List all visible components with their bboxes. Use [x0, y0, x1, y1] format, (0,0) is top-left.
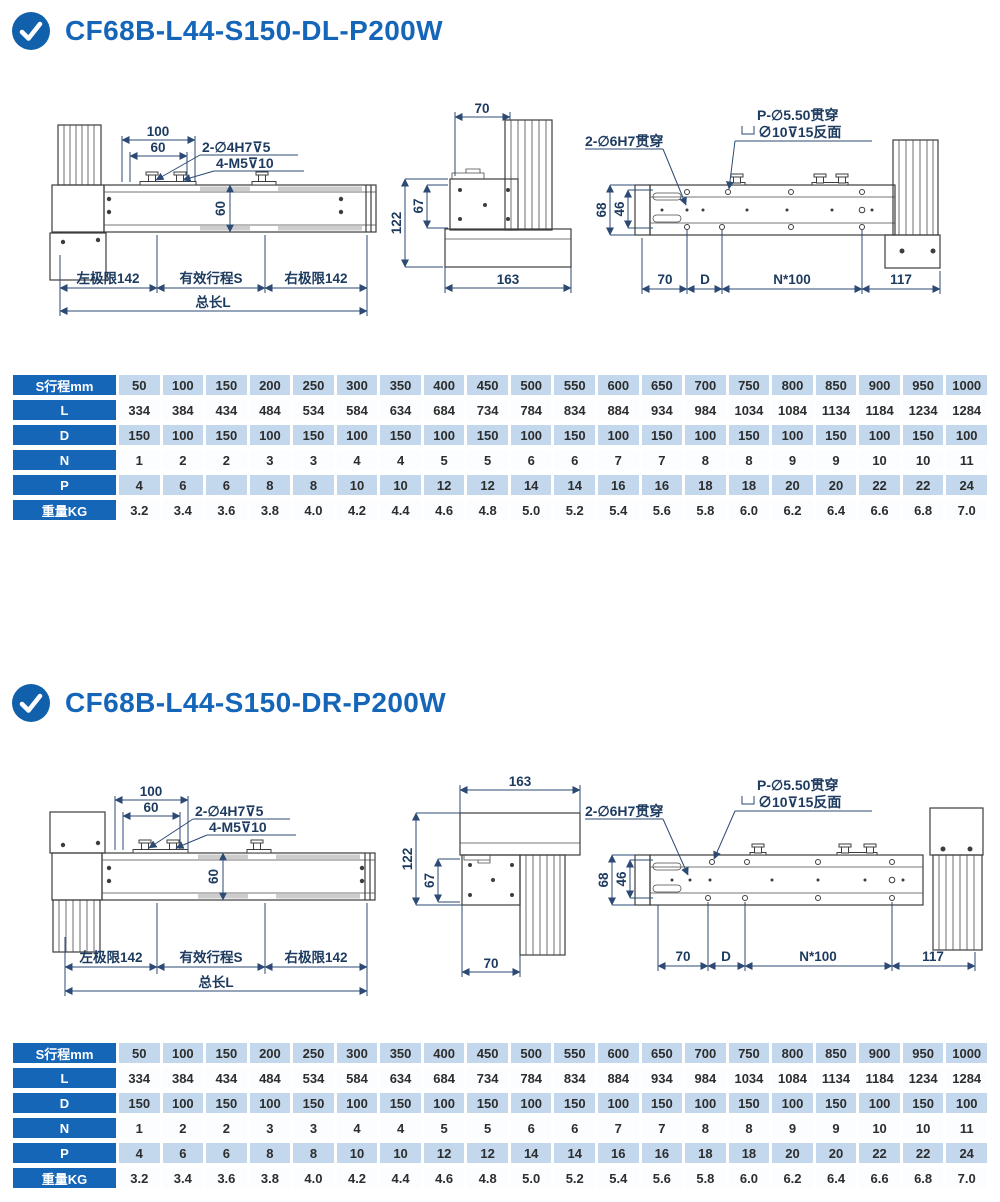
spec-cell: 150	[467, 1093, 508, 1113]
spec-cell: 1234	[903, 400, 944, 420]
checkmark-icon	[12, 684, 50, 722]
dimensions: 68 46 70 D N*100 117	[596, 855, 975, 971]
spec-cell: 10	[337, 1143, 378, 1163]
spec-cell: 950	[903, 375, 944, 395]
dimensions: 68 46 70 D N*100 117	[594, 185, 940, 294]
spec-cell: 100	[772, 425, 813, 445]
spec-cell: 950	[903, 1043, 944, 1063]
spec-row: D150100150100150100150100150100150100150…	[13, 1093, 987, 1113]
spec-row: P46688101012121414161618182020222224	[13, 475, 987, 495]
spec-cell: 14	[511, 475, 552, 495]
spec-cell: 450	[467, 1043, 508, 1063]
spec-cell: 484	[250, 1068, 291, 1088]
spec-cell: 6	[511, 450, 552, 470]
motor-assembly	[50, 125, 106, 280]
dim-67: 67	[411, 198, 426, 213]
annotation-dowel-holes: 2-∅4H7⊽5	[202, 139, 271, 155]
spec-cell: 20	[772, 1143, 813, 1163]
spec-cell: 750	[729, 375, 770, 395]
spec-cell: 150	[642, 425, 683, 445]
spec-cell: 5.6	[642, 500, 683, 520]
spec-cell: 434	[206, 400, 247, 420]
row-label: L	[13, 1068, 116, 1088]
carriage	[140, 172, 276, 185]
spec-cell: 6.4	[816, 500, 857, 520]
spec-cell: 150	[467, 425, 508, 445]
spec-cell: 1	[119, 1118, 160, 1138]
product-title: CF68B-L44-S150-DR-P200W	[65, 687, 446, 719]
dim-70: 70	[657, 272, 672, 287]
spec-cell: 10	[380, 1143, 421, 1163]
spec-cell: 7	[598, 1118, 639, 1138]
spec-cell: 8	[293, 475, 334, 495]
row-label: N	[13, 1118, 116, 1138]
spec-cell: 634	[380, 400, 421, 420]
spec-cell: 434	[206, 1068, 247, 1088]
drawing-side-view-dl: 100 60 2-∅4H7⊽5 4-M5⊽10 60 左极限142 有效行程S …	[40, 95, 385, 335]
spec-cell: 5.2	[554, 1168, 595, 1188]
spec-cell: 1284	[946, 1068, 987, 1088]
spec-cell: 650	[642, 375, 683, 395]
spec-cell: 150	[293, 1093, 334, 1113]
spec-cell: 784	[511, 1068, 552, 1088]
spec-cell: 600	[598, 1043, 639, 1063]
spec-cell: 150	[380, 425, 421, 445]
rail-body	[635, 185, 895, 235]
spec-cell: 100	[337, 425, 378, 445]
spec-cell: 6.0	[729, 1168, 770, 1188]
annotation-mount-screws: 4-M5⊽10	[209, 819, 267, 835]
spec-cell: 100	[685, 1093, 726, 1113]
spec-cell: 4	[337, 450, 378, 470]
spec-cell: 100	[511, 1093, 552, 1113]
dim-60-top: 60	[143, 800, 158, 815]
annotation-side-holes: 2-∅6H7贯穿	[585, 133, 663, 149]
spec-cell: 14	[554, 1143, 595, 1163]
spec-cell: 16	[598, 1143, 639, 1163]
drawing-side-view-dr: 100 60 2-∅4H7⊽5 4-M5⊽10 60 左极限142 有效行程S …	[30, 775, 390, 1020]
spec-cell: 650	[642, 1043, 683, 1063]
spec-cell: 6	[163, 1143, 204, 1163]
spec-cell: 150	[206, 375, 247, 395]
spec-row: 重量KG3.23.43.63.84.04.24.44.64.85.05.25.4…	[13, 1168, 987, 1188]
spec-cell: 100	[163, 1093, 204, 1113]
spec-cell: 7	[642, 450, 683, 470]
spec-cell: 8	[685, 1118, 726, 1138]
spec-cell: 150	[903, 425, 944, 445]
spec-cell: 5.4	[598, 500, 639, 520]
annotations: 2-∅6H7贯穿 P-∅5.50贯穿 ∅10⊽15反面	[585, 777, 872, 875]
spec-cell: 1084	[772, 400, 813, 420]
spec-row: L334384434484534584634684734784834884934…	[13, 400, 987, 420]
spec-cell: 884	[598, 400, 639, 420]
carriage	[462, 855, 520, 905]
annotation-p-holes: P-∅5.50贯穿	[757, 777, 838, 793]
dim-total-length: 总长L	[195, 294, 230, 310]
spec-cell: 6.8	[903, 500, 944, 520]
spec-row: N12233445566778899101011	[13, 450, 987, 470]
spec-cell: 4.2	[337, 1168, 378, 1188]
checkmark-icon	[12, 12, 50, 50]
dim-left-limit: 左极限142	[78, 949, 142, 965]
row-label: 重量KG	[13, 1168, 116, 1188]
spec-cell: 5.8	[685, 500, 726, 520]
carriage	[450, 169, 518, 230]
spec-cell: 150	[293, 425, 334, 445]
spec-cell: 20	[772, 475, 813, 495]
row-label: D	[13, 425, 116, 445]
spec-table-2: S行程mm50100150200250300350400450500550600…	[10, 1038, 990, 1193]
spec-cell: 3.8	[250, 500, 291, 520]
spec-cell: 8	[729, 1118, 770, 1138]
spec-cell: 3.4	[163, 500, 204, 520]
spec-cell: 100	[946, 1093, 987, 1113]
spec-cell: 6.0	[729, 500, 770, 520]
dim-right-limit: 右极限142	[284, 270, 347, 286]
spec-cell: 50	[119, 1043, 160, 1063]
counterbore-icon	[742, 796, 754, 804]
spec-cell: 150	[380, 1093, 421, 1113]
spec-cell: 8	[250, 475, 291, 495]
annotation-dowel-holes: 2-∅4H7⊽5	[195, 803, 264, 819]
spec-cell: 150	[206, 1093, 247, 1113]
spec-cell: 350	[380, 1043, 421, 1063]
spec-cell: 3.4	[163, 1168, 204, 1188]
spec-cell: 4.2	[337, 500, 378, 520]
section-2-header: CF68B-L44-S150-DR-P200W	[12, 682, 446, 724]
dim-pitch: N*100	[799, 949, 837, 964]
spec-cell: 12	[424, 475, 465, 495]
spec-cell: 6.2	[772, 1168, 813, 1188]
dim-70: 70	[474, 101, 489, 116]
dim-d: D	[721, 949, 731, 964]
spec-cell: 6	[206, 475, 247, 495]
dim-68: 68	[594, 202, 609, 218]
spec-cell: 4.8	[467, 500, 508, 520]
annotation-counterbore: ∅10⊽15反面	[758, 124, 841, 140]
row-label: P	[13, 475, 116, 495]
spec-cell: 534	[293, 400, 334, 420]
spec-cell: 384	[163, 400, 204, 420]
spec-cell: 684	[424, 400, 465, 420]
spec-cell: 22	[859, 475, 900, 495]
spec-cell: 100	[163, 375, 204, 395]
spec-cell: 4.8	[467, 1168, 508, 1188]
spec-cell: 934	[642, 400, 683, 420]
spec-cell: 4	[119, 475, 160, 495]
spec-cell: 10	[903, 450, 944, 470]
dim-117: 117	[922, 949, 944, 964]
spec-cell: 6.6	[859, 1168, 900, 1188]
spec-cell: 6	[554, 1118, 595, 1138]
spec-cell: 4.0	[293, 500, 334, 520]
row-label: N	[13, 450, 116, 470]
spec-row: L334384434484534584634684734784834884934…	[13, 1068, 987, 1088]
spec-row: 重量KG3.23.43.63.84.04.24.44.64.85.05.25.4…	[13, 500, 987, 520]
spec-cell: 18	[685, 475, 726, 495]
dim-70: 70	[675, 949, 690, 964]
spec-cell: 4	[380, 1118, 421, 1138]
spec-cell: 500	[511, 375, 552, 395]
spec-cell: 50	[119, 375, 160, 395]
spec-cell: 5	[467, 1118, 508, 1138]
spec-cell: 150	[903, 1093, 944, 1113]
carriage-bolts	[750, 844, 877, 855]
spec-cell: 6	[554, 450, 595, 470]
spec-cell: 16	[598, 475, 639, 495]
dim-67: 67	[422, 873, 437, 888]
row-label: P	[13, 1143, 116, 1163]
spec-cell: 20	[816, 1143, 857, 1163]
spec-cell: 350	[380, 375, 421, 395]
row-label: S行程mm	[13, 1043, 116, 1063]
spec-cell: 4.4	[380, 1168, 421, 1188]
spec-cell: 550	[554, 375, 595, 395]
spec-cell: 900	[859, 375, 900, 395]
spec-cell: 150	[119, 425, 160, 445]
spec-cell: 18	[729, 1143, 770, 1163]
spec-cell: 10	[859, 1118, 900, 1138]
dim-163: 163	[509, 774, 532, 789]
rail-body	[104, 185, 376, 232]
spec-cell: 14	[511, 1143, 552, 1163]
spec-cell: 6	[163, 475, 204, 495]
datasheet-page: CF68B-L44-S150-DL-P200W	[0, 0, 1000, 1202]
spec-cell: 12	[467, 1143, 508, 1163]
drawing-end-view-dl: 70 122 67 163	[388, 98, 598, 310]
drawing-end-view-dr: 163 122 67 70	[398, 772, 603, 1007]
base-block	[445, 229, 571, 267]
annotation-counterbore: ∅10⊽15反面	[758, 794, 841, 810]
spec-cell: 18	[729, 475, 770, 495]
spec-cell: 10	[859, 450, 900, 470]
spec-cell: 984	[685, 1068, 726, 1088]
spec-cell: 18	[685, 1143, 726, 1163]
dim-stroke: 有效行程S	[179, 949, 242, 965]
dimensions: 70 122 67 163	[389, 101, 571, 293]
spec-cell: 5	[467, 450, 508, 470]
dim-left-limit: 左极限142	[75, 270, 139, 286]
spec-cell: 7	[642, 1118, 683, 1138]
spec-cell: 100	[424, 425, 465, 445]
spec-cell: 100	[511, 425, 552, 445]
spec-row: D150100150100150100150100150100150100150…	[13, 425, 987, 445]
spec-cell: 334	[119, 400, 160, 420]
dim-46: 46	[612, 201, 627, 217]
spec-cell: 1034	[729, 1068, 770, 1088]
spec-cell: 22	[903, 1143, 944, 1163]
spec-cell: 6	[511, 1118, 552, 1138]
spec-cell: 584	[337, 1068, 378, 1088]
spec-cell: 300	[337, 375, 378, 395]
carriage	[133, 840, 271, 853]
spec-cell: 22	[859, 1143, 900, 1163]
spec-cell: 1234	[903, 1068, 944, 1088]
spec-cell: 1	[119, 450, 160, 470]
spec-cell: 10	[337, 475, 378, 495]
spec-cell: 1084	[772, 1068, 813, 1088]
spec-cell: 100	[163, 1043, 204, 1063]
spec-cell: 10	[380, 475, 421, 495]
section-1-header: CF68B-L44-S150-DL-P200W	[12, 10, 443, 52]
spec-cell: 100	[337, 1093, 378, 1113]
spec-cell: 11	[946, 450, 987, 470]
spec-cell: 1284	[946, 400, 987, 420]
spec-cell: 4.4	[380, 500, 421, 520]
spec-cell: 734	[467, 1068, 508, 1088]
spec-cell: 1184	[859, 1068, 900, 1088]
spec-cell: 834	[554, 1068, 595, 1088]
spec-cell: 484	[250, 400, 291, 420]
spec-cell: 4.6	[424, 1168, 465, 1188]
spec-row: S行程mm50100150200250300350400450500550600…	[13, 1043, 987, 1063]
spec-cell: 10	[903, 1118, 944, 1138]
spec-cell: 7.0	[946, 1168, 987, 1188]
spec-cell: 100	[772, 1093, 813, 1113]
spec-cell: 150	[119, 1093, 160, 1113]
spec-cell: 984	[685, 400, 726, 420]
spec-cell: 334	[119, 1068, 160, 1088]
spec-cell: 12	[424, 1143, 465, 1163]
spec-cell: 884	[598, 1068, 639, 1088]
dim-60-top: 60	[150, 140, 165, 155]
drawing-top-view-dr: 2-∅6H7贯穿 P-∅5.50贯穿 ∅10⊽15反面 68 46 70 D N…	[585, 775, 1000, 1010]
spec-cell: 20	[816, 475, 857, 495]
dim-68: 68	[596, 872, 611, 888]
spec-cell: 700	[685, 1043, 726, 1063]
spec-row: P46688101012121414161618182020222224	[13, 1143, 987, 1163]
spec-cell: 2	[163, 1118, 204, 1138]
spec-cell: 3.2	[119, 500, 160, 520]
spec-cell: 634	[380, 1068, 421, 1088]
spec-cell: 100	[424, 1093, 465, 1113]
spec-cell: 784	[511, 400, 552, 420]
spec-cell: 12	[467, 475, 508, 495]
dim-stroke: 有效行程S	[179, 270, 242, 286]
spec-cell: 100	[685, 425, 726, 445]
spec-cell: 3	[293, 450, 334, 470]
spec-cell: 200	[250, 1043, 291, 1063]
dim-70: 70	[483, 956, 498, 971]
spec-cell: 100	[859, 1093, 900, 1113]
spec-cell: 150	[816, 1093, 857, 1113]
spec-cell: 2	[163, 450, 204, 470]
annotation-mount-screws: 4-M5⊽10	[216, 155, 274, 171]
counterbore-icon	[742, 126, 754, 134]
spec-cell: 684	[424, 1068, 465, 1088]
spec-cell: 6.8	[903, 1168, 944, 1188]
spec-cell: 934	[642, 1068, 683, 1088]
spec-cell: 100	[598, 425, 639, 445]
spec-cell: 1134	[816, 400, 857, 420]
motor-assembly	[930, 808, 983, 950]
spec-cell: 734	[467, 400, 508, 420]
spec-cell: 1034	[729, 400, 770, 420]
drawing-top-view-dl: 2-∅6H7贯穿 P-∅5.50贯穿 ∅10⊽15反面 68 46 70 D N…	[585, 98, 1000, 310]
spec-cell: 14	[554, 475, 595, 495]
spec-cell: 584	[337, 400, 378, 420]
spec-cell: 8	[685, 450, 726, 470]
spec-cell: 900	[859, 1043, 900, 1063]
spec-cell: 22	[903, 475, 944, 495]
spec-cell: 700	[685, 375, 726, 395]
spec-cell: 11	[946, 1118, 987, 1138]
spec-cell: 3.6	[206, 1168, 247, 1188]
spec-cell: 6.4	[816, 1168, 857, 1188]
spec-cell: 834	[554, 400, 595, 420]
spec-cell: 5.8	[685, 1168, 726, 1188]
motor-assembly	[50, 812, 105, 952]
spec-row: N12233445566778899101011	[13, 1118, 987, 1138]
dim-122: 122	[400, 848, 415, 871]
spec-cell: 1134	[816, 1068, 857, 1088]
spec-cell: 150	[554, 1093, 595, 1113]
spec-cell: 3.2	[119, 1168, 160, 1188]
spec-cell: 100	[163, 425, 204, 445]
spec-cell: 4	[337, 1118, 378, 1138]
spec-cell: 2	[206, 1118, 247, 1138]
spec-cell: 5.4	[598, 1168, 639, 1188]
spec-cell: 400	[424, 1043, 465, 1063]
spec-cell: 150	[554, 425, 595, 445]
spec-cell: 2	[206, 450, 247, 470]
spec-cell: 150	[206, 425, 247, 445]
spec-table-1: S行程mm50100150200250300350400450500550600…	[10, 370, 990, 525]
spec-cell: 150	[642, 1093, 683, 1113]
spec-cell: 300	[337, 1043, 378, 1063]
spec-cell: 9	[816, 450, 857, 470]
spec-cell: 150	[729, 425, 770, 445]
spec-cell: 8	[293, 1143, 334, 1163]
spec-cell: 150	[729, 1093, 770, 1113]
dim-46: 46	[614, 871, 629, 887]
spec-cell: 24	[946, 475, 987, 495]
row-label: 重量KG	[13, 500, 116, 520]
spec-cell: 5.6	[642, 1168, 683, 1188]
spec-cell: 100	[859, 425, 900, 445]
spec-cell: 250	[293, 375, 334, 395]
spec-cell: 500	[511, 1043, 552, 1063]
motor-assembly	[885, 140, 940, 268]
spec-cell: 3	[250, 450, 291, 470]
spec-cell: 3	[293, 1118, 334, 1138]
spec-cell: 3.8	[250, 1168, 291, 1188]
spec-cell: 6.2	[772, 500, 813, 520]
spec-cell: 250	[293, 1043, 334, 1063]
dimensions: 100 60 2-∅4H7⊽5 4-M5⊽10 60 左极限142 有效行程S …	[65, 784, 367, 996]
spec-cell: 5	[424, 450, 465, 470]
spec-cell: 4.0	[293, 1168, 334, 1188]
dim-right-limit: 右极限142	[284, 949, 347, 965]
spec-row: S行程mm50100150200250300350400450500550600…	[13, 375, 987, 395]
dim-d: D	[700, 272, 710, 287]
spec-cell: 16	[642, 1143, 683, 1163]
spec-cell: 16	[642, 475, 683, 495]
spec-cell: 150	[816, 425, 857, 445]
spec-cell: 4.6	[424, 500, 465, 520]
spec-cell: 7.0	[946, 500, 987, 520]
spec-cell: 800	[772, 375, 813, 395]
spec-cell: 3.6	[206, 500, 247, 520]
spec-cell: 800	[772, 1043, 813, 1063]
spec-cell: 9	[772, 1118, 813, 1138]
spec-cell: 534	[293, 1068, 334, 1088]
spec-cell: 450	[467, 375, 508, 395]
rail-body	[635, 855, 923, 905]
spec-cell: 100	[946, 425, 987, 445]
dim-122: 122	[389, 212, 404, 235]
dim-100: 100	[140, 784, 163, 799]
